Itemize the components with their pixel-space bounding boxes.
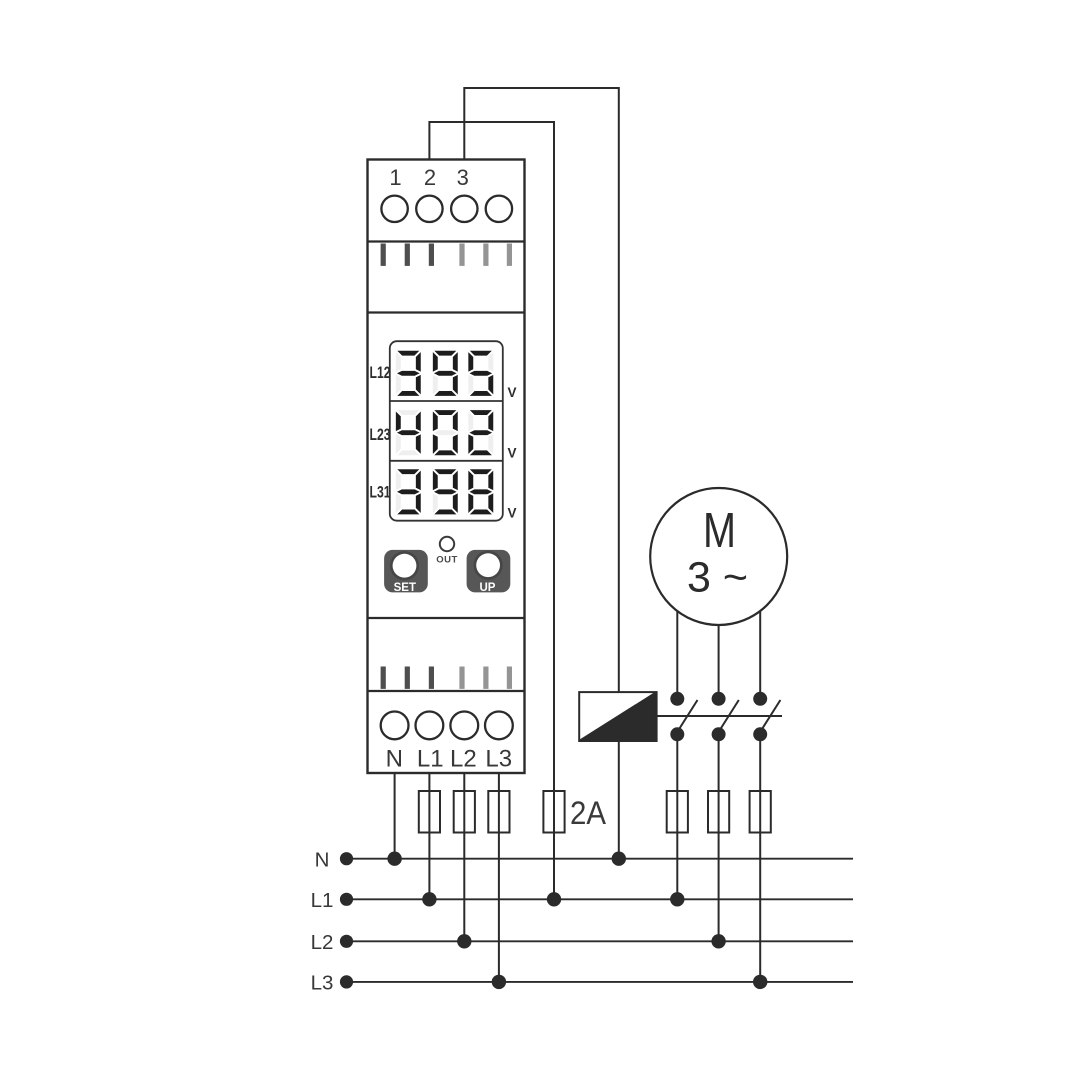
svg-text:2: 2 xyxy=(424,165,436,190)
svg-text:L1: L1 xyxy=(311,889,334,912)
svg-text:M: M xyxy=(703,504,736,558)
svg-text:N: N xyxy=(386,746,403,773)
svg-text:V: V xyxy=(507,385,516,400)
svg-text:V: V xyxy=(507,445,516,460)
svg-text:N: N xyxy=(315,849,330,872)
svg-text:L23: L23 xyxy=(370,425,391,444)
svg-text:3 ~: 3 ~ xyxy=(687,553,748,601)
svg-text:L3: L3 xyxy=(311,971,334,994)
svg-text:SET: SET xyxy=(394,582,416,594)
svg-text:3: 3 xyxy=(457,165,469,190)
svg-text:1: 1 xyxy=(389,165,401,190)
svg-text:L2: L2 xyxy=(450,746,477,773)
svg-text:OUT: OUT xyxy=(436,555,458,566)
svg-text:L3: L3 xyxy=(485,746,512,773)
svg-text:V: V xyxy=(507,505,516,520)
svg-text:L1: L1 xyxy=(417,746,444,773)
svg-text:L2: L2 xyxy=(311,931,334,954)
svg-text:2A: 2A xyxy=(570,795,607,831)
svg-text:UP: UP xyxy=(480,582,496,594)
svg-text:L31: L31 xyxy=(370,483,391,502)
svg-text:L12: L12 xyxy=(370,363,391,382)
